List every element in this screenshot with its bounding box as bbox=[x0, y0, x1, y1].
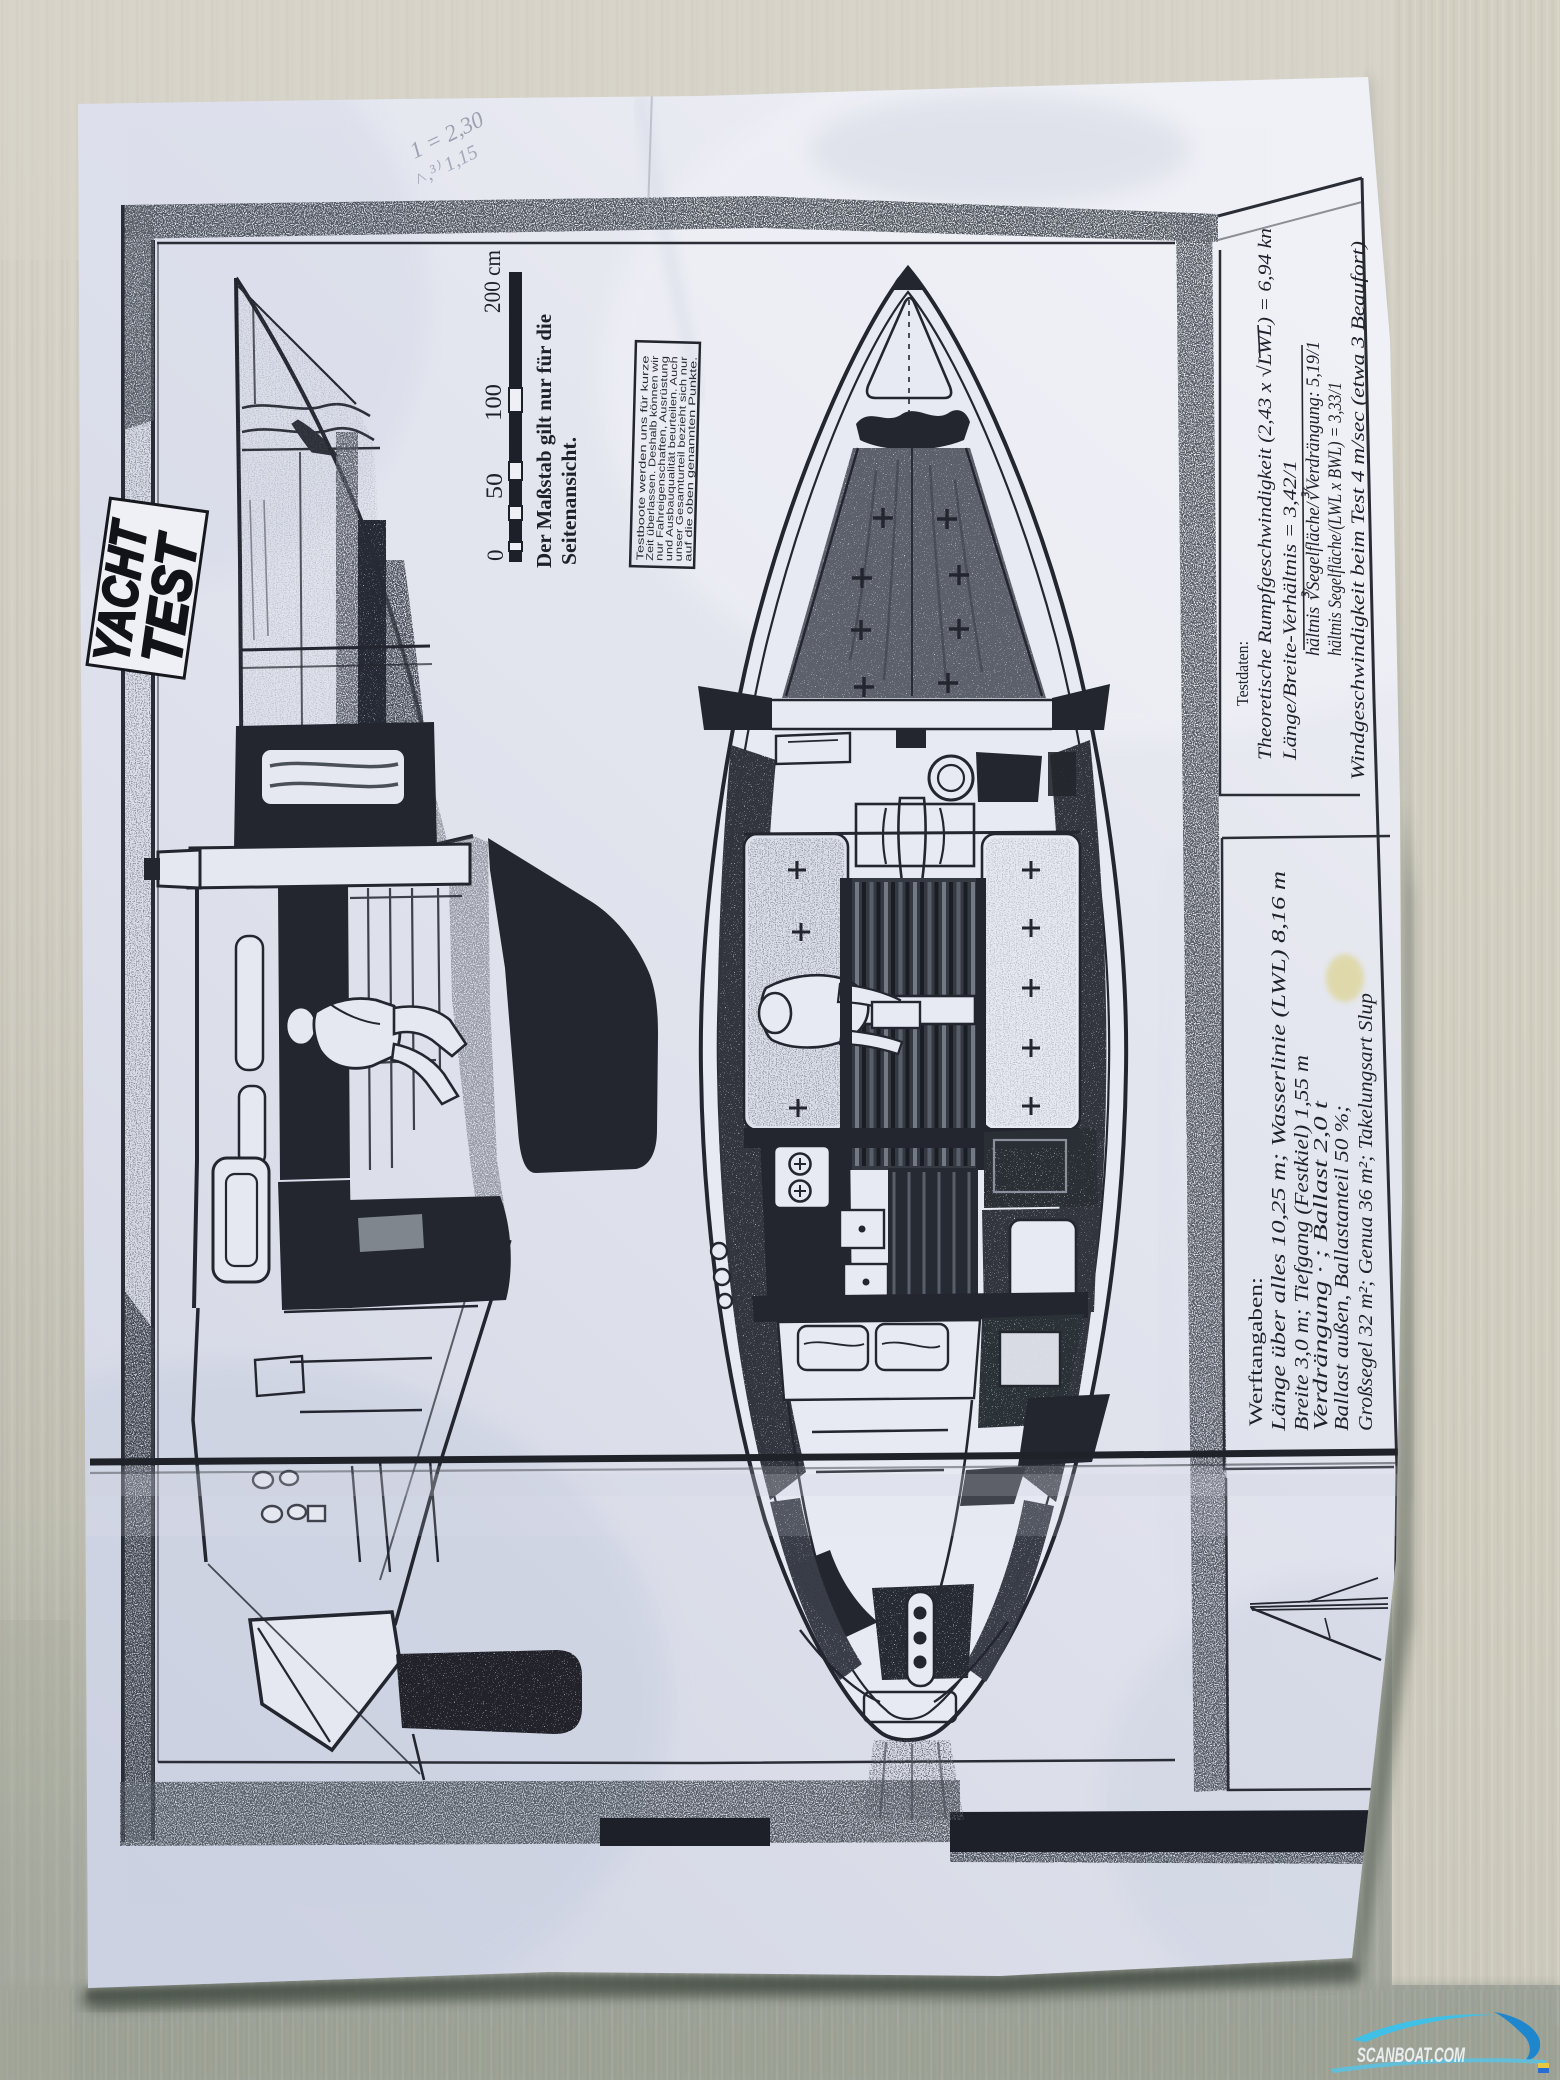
svg-text:50: 50 bbox=[482, 473, 507, 499]
svg-text:Werftangaben:: Werftangaben: bbox=[1246, 1277, 1267, 1426]
svg-text:Länge/Breite-Verhältnis = 3,42: Länge/Breite-Verhältnis = 3,42/1 bbox=[1280, 460, 1301, 761]
svg-text:Großsegel 32 m²; Genua 36 m²;: Großsegel 32 m²; Genua 36 m²; Takelungsa… bbox=[1355, 993, 1377, 1431]
svg-text:Windgeschwindigkeit beim Test: Windgeschwindigkeit beim Test 4 m/sec (e… bbox=[1348, 241, 1369, 780]
svg-text:hältnis Segelfläche/(LWL x BWL: hältnis Segelfläche/(LWL x BWL) = 3,33/1 bbox=[1325, 382, 1346, 656]
svg-text:0: 0 bbox=[483, 550, 508, 562]
svg-text:Seitenansicht.: Seitenansicht. bbox=[557, 437, 581, 565]
svg-text:100: 100 bbox=[481, 384, 506, 421]
svg-text:Ballast außen, Ballastanteil 5: Ballast außen, Ballastanteil 50 %; bbox=[1331, 1105, 1353, 1431]
svg-text:Der Maßstab gilt nur für die: Der Maßstab gilt nur für die bbox=[532, 314, 556, 568]
svg-text:Länge über alles 10,25 m; Wass: Länge über alles 10,25 m; Wasserlinie (L… bbox=[1268, 871, 1290, 1432]
svg-text:Verdrängung · ; Ballast 2: Verdrängung · ; Ballast 2,0 t bbox=[1310, 1100, 1332, 1431]
svg-text:SCANBOAT.COM: SCANBOAT.COM bbox=[1357, 2044, 1465, 2067]
svg-text:Testdaten:: Testdaten: bbox=[1233, 641, 1252, 706]
svg-text:200 cm: 200 cm bbox=[480, 250, 505, 313]
svg-text:Theoretische Rumpfgeschwindigk: Theoretische Rumpfgeschwindigkeit (2,43 … bbox=[1255, 228, 1276, 760]
